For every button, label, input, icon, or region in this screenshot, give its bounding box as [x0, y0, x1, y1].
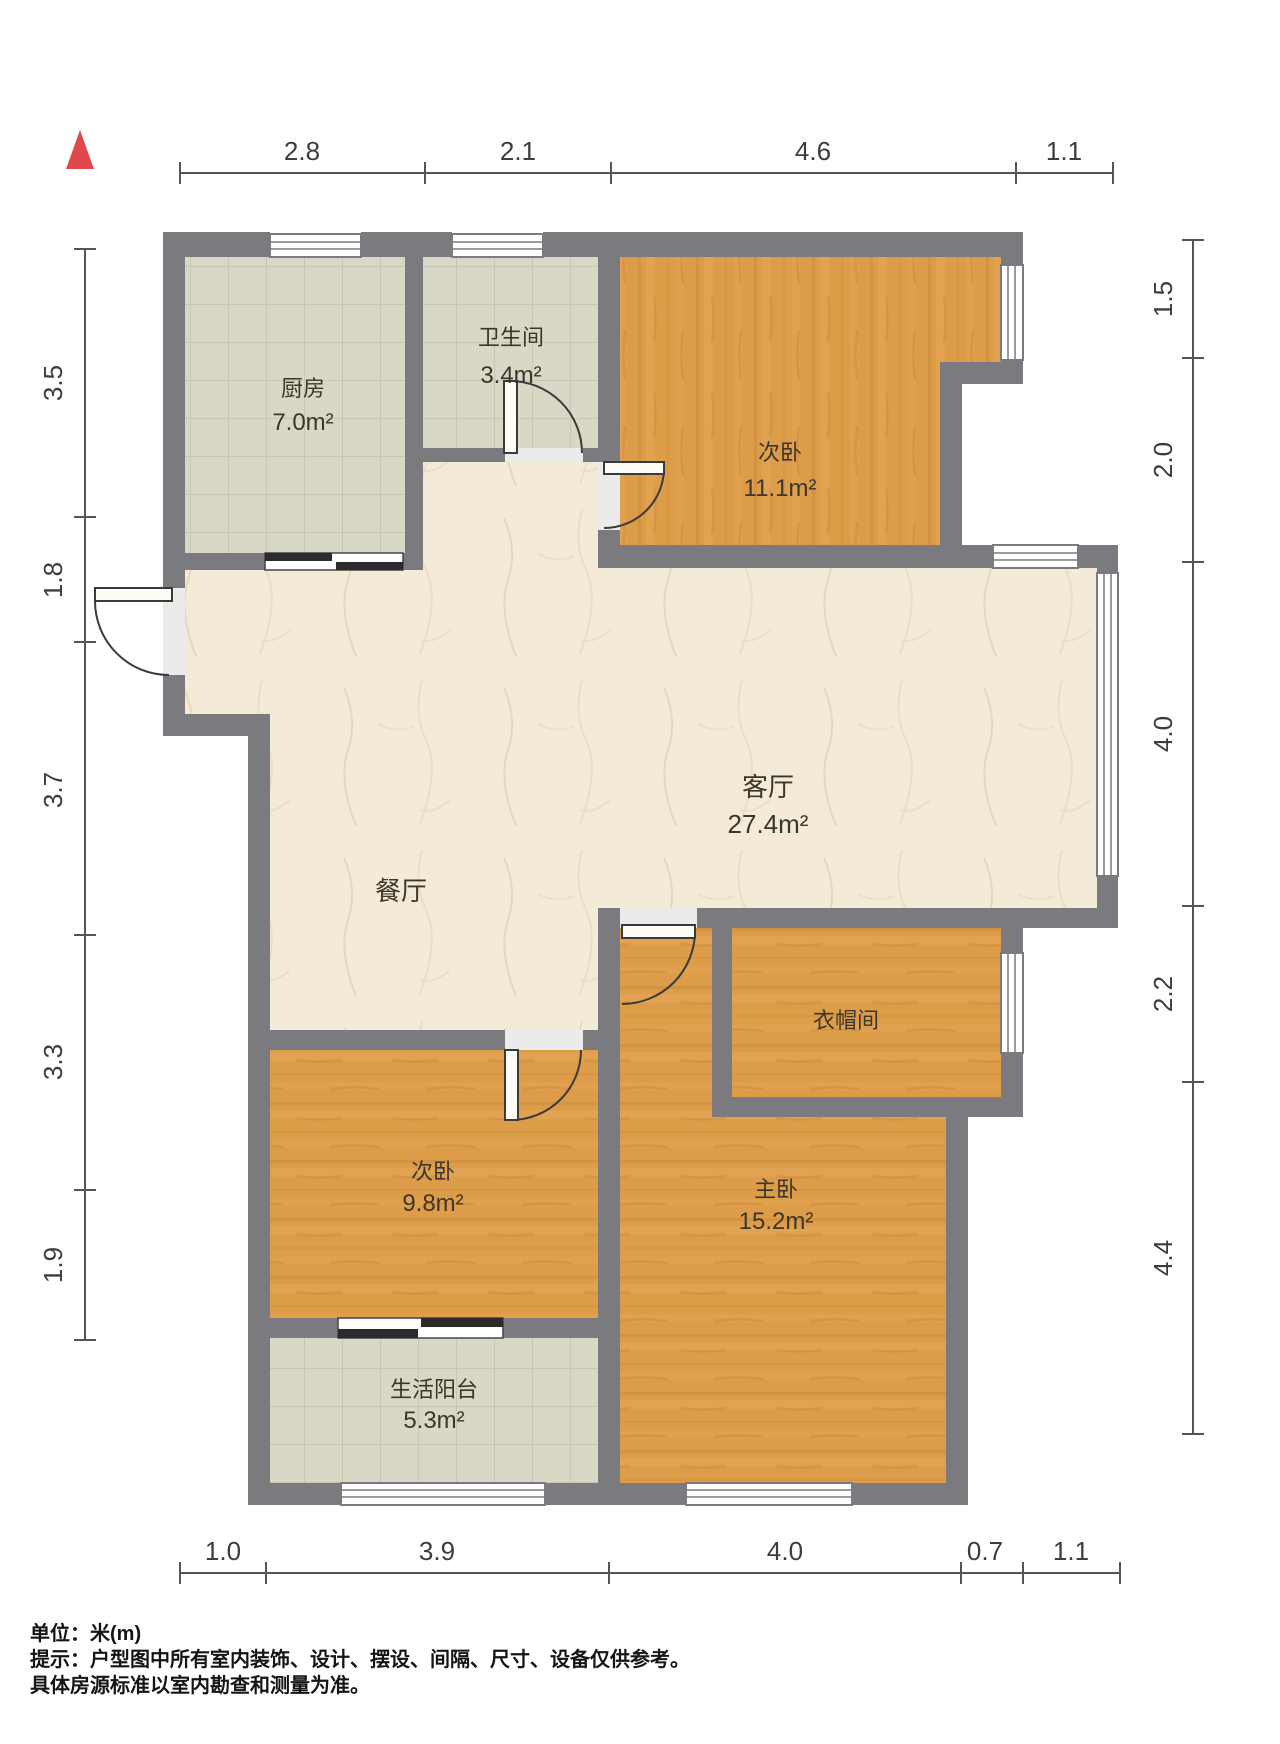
balcony-window: [341, 1483, 545, 1505]
dim-bottom-0: 1.0: [205, 1536, 241, 1566]
entry-door: [95, 588, 172, 675]
footer-note-line: 具体房源标准以室内勘查和测量为准。: [30, 1673, 370, 1697]
room-area-kitchen: 7.0m²: [272, 409, 333, 436]
room-area-living: 27.4m²: [728, 809, 809, 839]
dim-right-3: 2.2: [1148, 976, 1178, 1012]
room-label-balcony: 生活阳台: [390, 1377, 478, 1402]
living-top-window: [993, 545, 1078, 568]
dim-left-1: 1.8: [38, 562, 68, 598]
room-label-kitchen: 厨房: [281, 376, 325, 401]
dim-top-1: 2.1: [500, 136, 536, 166]
room-label-bedroom-top: 次卧: [758, 440, 802, 465]
dim-bottom-4: 1.1: [1053, 1536, 1089, 1566]
dim-bottom-1: 3.9: [419, 1536, 455, 1566]
dim-bottom-3: 0.7: [967, 1536, 1003, 1566]
dim-right-1: 2.0: [1148, 442, 1178, 478]
floor-plan-page: 2.8 2.1 4.6 1.1 3.5 1.8 3.7 3.3 1.9 1.5 …: [0, 0, 1280, 1744]
dim-left-0: 3.5: [38, 365, 68, 401]
north-arrow-icon: [66, 130, 94, 169]
dim-right-0: 1.5: [1148, 281, 1178, 317]
balcony-sliding-door: [338, 1318, 503, 1338]
dim-top-2: 4.6: [795, 136, 831, 166]
room-area-bathroom: 3.4m²: [480, 362, 541, 389]
floor-plan-svg: 2.8 2.1 4.6 1.1 3.5 1.8 3.7 3.3 1.9 1.5 …: [0, 0, 1280, 1744]
room-label-dining: 餐厅: [375, 876, 427, 906]
room-label-cloakroom: 衣帽间: [813, 1008, 879, 1033]
room-area-bedroom-bottom: 9.8m²: [402, 1190, 463, 1217]
kitchen-window: [270, 234, 361, 257]
dim-top-3: 1.1: [1046, 136, 1082, 166]
floor-kitchen: [173, 245, 415, 562]
dim-top-0: 2.8: [284, 136, 320, 166]
dim-right-4: 4.4: [1148, 1240, 1178, 1276]
footer-unit-line: 单位：米(m): [30, 1621, 141, 1645]
room-area-balcony: 5.3m²: [403, 1407, 464, 1434]
dim-left-3: 3.3: [38, 1044, 68, 1080]
dim-left-4: 1.9: [38, 1247, 68, 1283]
dim-bottom-2: 4.0: [767, 1536, 803, 1566]
cloakroom-window: [1001, 953, 1023, 1053]
dim-chain-right: [1182, 240, 1204, 1434]
master-bottom-window: [686, 1483, 852, 1505]
living-right-window: [1097, 573, 1118, 876]
bedroom-top-window: [1001, 265, 1023, 360]
room-area-master: 15.2m²: [739, 1208, 814, 1235]
room-label-bathroom: 卫生间: [478, 325, 544, 350]
footer: 单位：米(m) 提示：户型图中所有室内装饰、设计、摆设、间隔、尺寸、设备仅供参考…: [30, 1621, 690, 1697]
room-label-living: 客厅: [742, 772, 794, 802]
floor-bedroom-bottom: [260, 1040, 610, 1328]
dim-chain-left: [74, 249, 96, 1340]
kitchen-sliding-door: [265, 553, 403, 570]
bathroom-window: [452, 234, 543, 257]
dim-right-2: 4.0: [1148, 716, 1178, 752]
room-area-bedroom-top: 11.1m²: [744, 475, 817, 502]
room-label-bedroom-bottom: 次卧: [411, 1159, 455, 1184]
room-label-master: 主卧: [754, 1177, 798, 1202]
dim-left-2: 3.7: [38, 772, 68, 808]
footer-tip-line: 提示：户型图中所有室内装饰、设计、摆设、间隔、尺寸、设备仅供参考。: [30, 1647, 690, 1671]
